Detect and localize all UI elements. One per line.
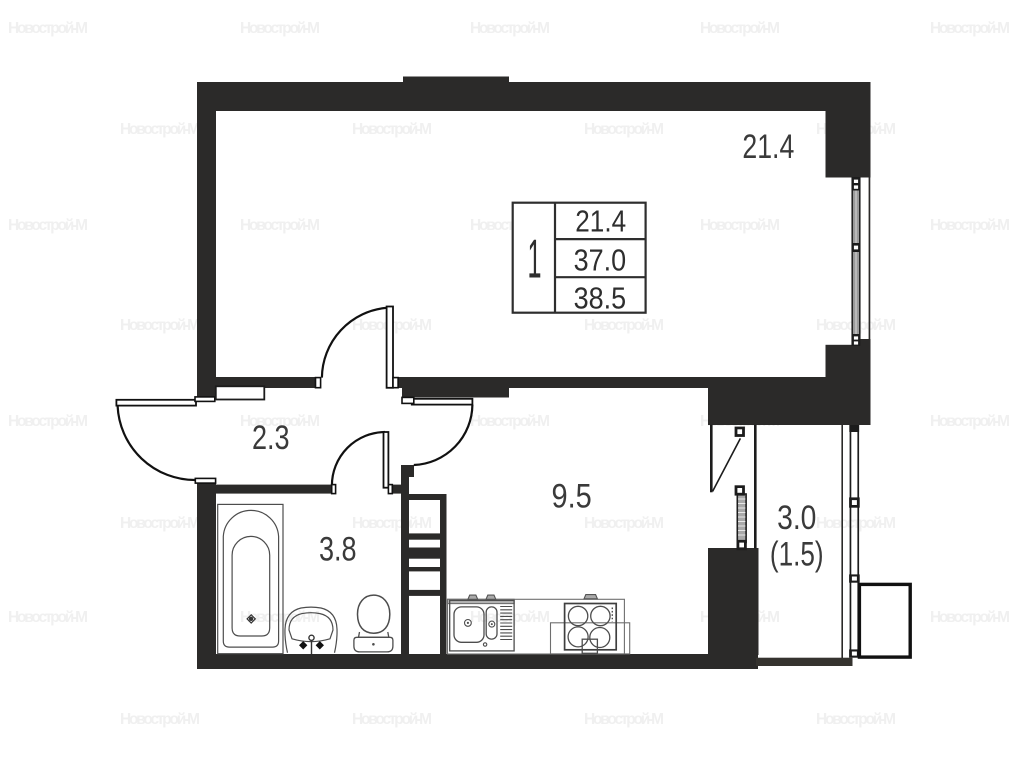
svg-text:Новострой-М: Новострой-М <box>930 217 1010 234</box>
svg-text:Новострой-М: Новострой-М <box>352 515 432 532</box>
svg-text:38.5: 38.5 <box>574 282 627 316</box>
svg-text:Новострой-М: Новострой-М <box>584 515 664 532</box>
svg-text:Новострой-М: Новострой-М <box>930 609 1010 626</box>
svg-text:1: 1 <box>528 228 542 290</box>
svg-text:Новострой-М: Новострой-М <box>584 121 664 138</box>
svg-text:9.5: 9.5 <box>552 477 592 515</box>
svg-text:21.4: 21.4 <box>575 205 626 239</box>
svg-text:Новострой-М: Новострой-М <box>816 711 896 728</box>
svg-text:Новострой-М: Новострой-М <box>120 711 200 728</box>
svg-text:Новострой-М: Новострой-М <box>120 317 200 334</box>
svg-text:Новострой-М: Новострой-М <box>470 413 550 430</box>
svg-text:3.0: 3.0 <box>777 499 816 537</box>
svg-text:Новострой-М: Новострой-М <box>584 317 664 334</box>
svg-text:Новострой-М: Новострой-М <box>120 121 200 138</box>
svg-text:Новострой-М: Новострой-М <box>8 20 88 37</box>
svg-text:Новострой-М: Новострой-М <box>8 217 88 234</box>
svg-text:2.3: 2.3 <box>252 419 290 457</box>
svg-text:Новострой-М: Новострой-М <box>816 515 896 532</box>
svg-text:Новострой-М: Новострой-М <box>352 711 432 728</box>
svg-text:21.4: 21.4 <box>742 128 794 166</box>
svg-text:Новострой-М: Новострой-М <box>240 217 320 234</box>
svg-text:Новострой-М: Новострой-М <box>120 515 200 532</box>
svg-text:Новострой-М: Новострой-М <box>700 217 780 234</box>
svg-text:3.8: 3.8 <box>319 531 357 569</box>
svg-text:Новострой-М: Новострой-М <box>700 20 780 37</box>
svg-text:37.0: 37.0 <box>574 243 627 277</box>
svg-text:Новострой-М: Новострой-М <box>8 609 88 626</box>
svg-text:Новострой-М: Новострой-М <box>584 711 664 728</box>
svg-text:Новострой-М: Новострой-М <box>240 20 320 37</box>
svg-text:Новострой-М: Новострой-М <box>930 413 1010 430</box>
svg-text:Новострой-М: Новострой-М <box>470 20 550 37</box>
svg-text:Новострой-М: Новострой-М <box>352 121 432 138</box>
svg-text:(1.5): (1.5) <box>770 536 824 574</box>
svg-text:Новострой-М: Новострой-М <box>8 413 88 430</box>
svg-text:Новострой-М: Новострой-М <box>930 20 1010 37</box>
